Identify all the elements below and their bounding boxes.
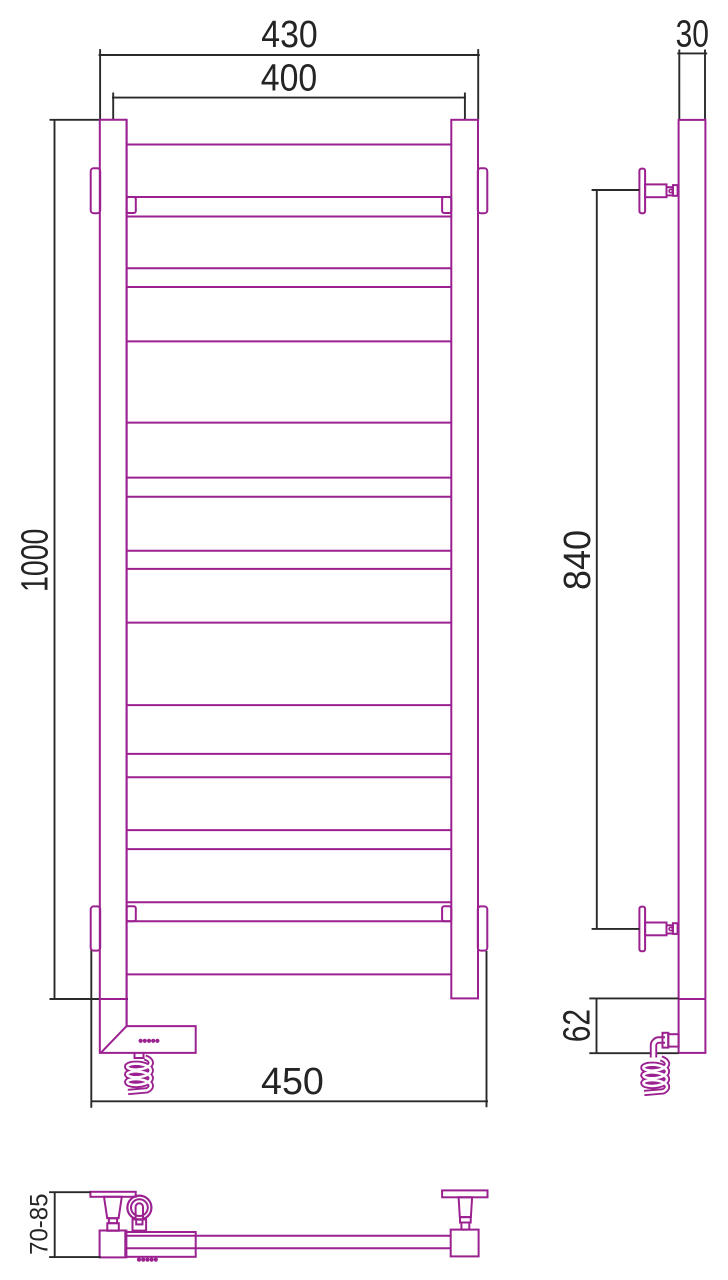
svg-text:62: 62 [556,1009,598,1042]
svg-text:70-85: 70-85 [26,1194,54,1255]
svg-text:450: 450 [261,1061,324,1103]
svg-text:840: 840 [555,530,598,590]
svg-text:400: 400 [261,55,317,98]
svg-text:30: 30 [676,13,709,55]
svg-text:1000: 1000 [15,529,57,592]
svg-text:430: 430 [261,12,317,55]
